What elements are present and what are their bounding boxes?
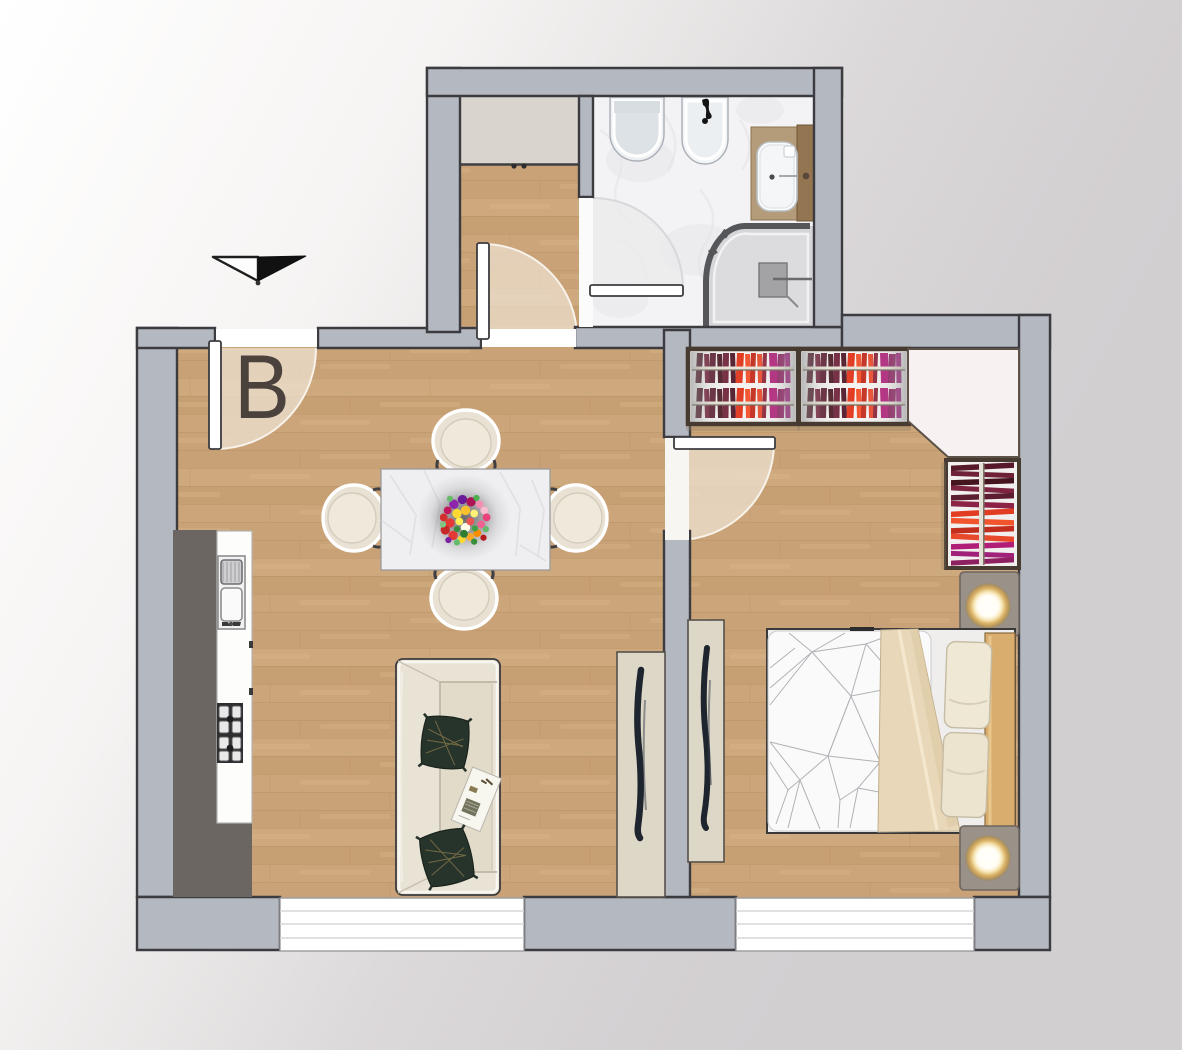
- svg-text:B: B: [234, 337, 290, 438]
